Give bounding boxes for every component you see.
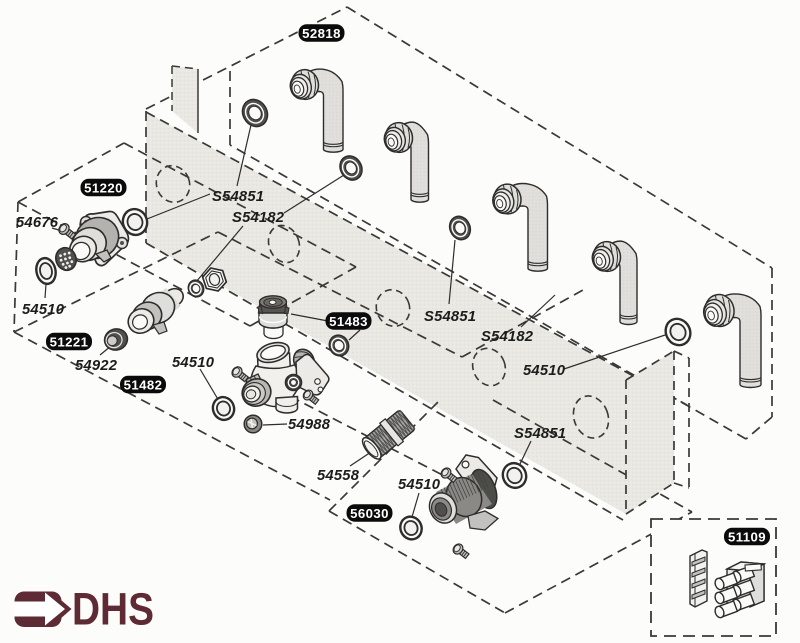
svg-text:51482: 51482 [124,377,163,392]
svg-text:54510: 54510 [172,355,215,371]
svg-text:51220: 51220 [84,180,123,195]
svg-text:51221: 51221 [50,334,89,349]
svg-text:54510: 54510 [22,302,65,318]
svg-text:S54851: S54851 [514,426,566,442]
svg-text:52818: 52818 [302,26,341,41]
svg-text:S54851: S54851 [212,189,264,205]
svg-text:DHS: DHS [72,584,154,635]
svg-text:56030: 56030 [350,506,389,521]
svg-text:54676: 54676 [16,215,59,231]
svg-text:S54851: S54851 [424,309,476,325]
svg-text:54988: 54988 [288,417,331,433]
svg-text:51483: 51483 [329,314,368,329]
svg-text:S54182: S54182 [232,210,285,226]
svg-text:54510: 54510 [523,363,566,379]
svg-text:54922: 54922 [75,358,118,374]
svg-text:S54182: S54182 [481,329,534,345]
svg-text:51109: 51109 [728,529,766,544]
svg-text:54558: 54558 [317,468,360,484]
svg-text:54510: 54510 [398,477,441,493]
